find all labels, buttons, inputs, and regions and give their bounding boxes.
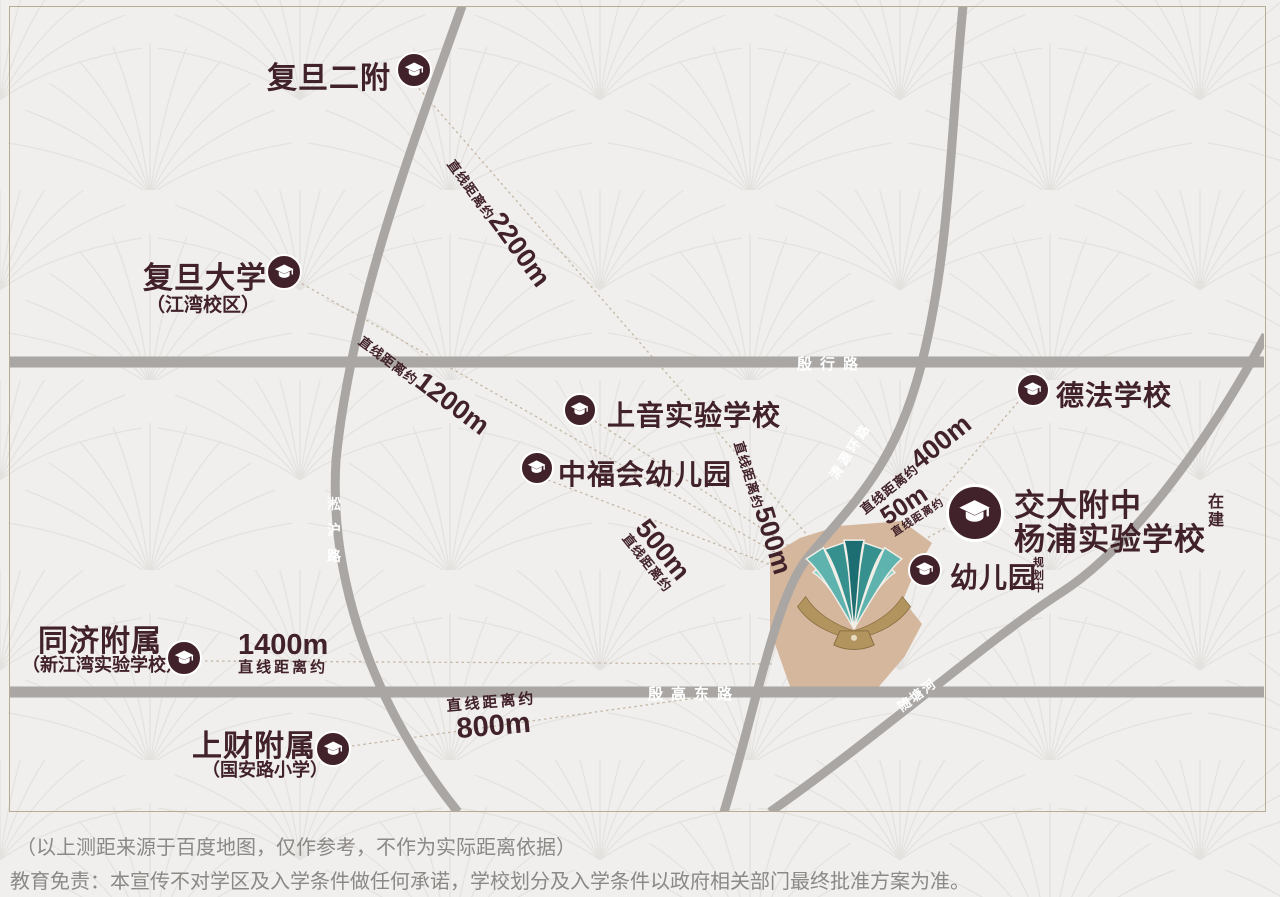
status-tag-planned: 规划中 <box>1033 557 1045 595</box>
status-tag-under-construction: 在建 <box>1208 494 1225 531</box>
project-building <box>793 526 915 652</box>
graduation-cap-icon <box>266 254 302 290</box>
distance-label-1400m: 1400m 直线距离约 <box>238 630 328 676</box>
education-disclaimer: 教育免责：本宣传不对学区及入学条件做任何承诺，学校划分及入学条件以政府相关部门最… <box>10 865 970 894</box>
graduation-cap-icon <box>166 640 202 676</box>
school-sublabel-xinjiangwan: （新江湾实验学校） <box>22 651 184 677</box>
school-label-jiaoda-line2: 杨浦实验学校 <box>1014 514 1206 559</box>
graduation-cap-icon <box>520 451 554 485</box>
graduation-cap-icon <box>396 52 432 88</box>
school-sublabel-jiangwan-campus: （江湾校区） <box>146 290 260 317</box>
graduation-cap-icon <box>908 553 942 587</box>
road-label-songhu: 淞沪路 <box>327 492 342 570</box>
school-sublabel-guoanlu: （国安路小学） <box>202 756 328 782</box>
measurement-footnote: （以上测距来源于百度地图，仅作参考，不作为实际距离依据） <box>16 831 576 860</box>
graduation-cap-icon <box>946 484 1004 542</box>
graduation-cap-icon <box>1016 373 1050 407</box>
graduation-cap-icon <box>315 731 351 767</box>
school-distance-map-page: { "map": { "colors": { "accent_maroon": … <box>0 0 1280 897</box>
distance-label-800m: 直线距离约 800m <box>446 691 540 745</box>
school-label-zhongfuhui: 中福会幼儿园 <box>558 453 732 493</box>
road-label-yingaodong: 殷高东路 <box>648 683 740 704</box>
road-label-yinhang: 殷行路 <box>797 353 866 374</box>
school-label-kindergarten: 幼儿园 <box>950 556 1037 596</box>
school-label-shangyin: 上音实验学校 <box>607 394 781 434</box>
graduation-cap-icon <box>563 393 597 427</box>
school-label-fudan-erfu: 复旦二附 <box>267 53 391 97</box>
school-label-defa: 德法学校 <box>1056 374 1172 414</box>
